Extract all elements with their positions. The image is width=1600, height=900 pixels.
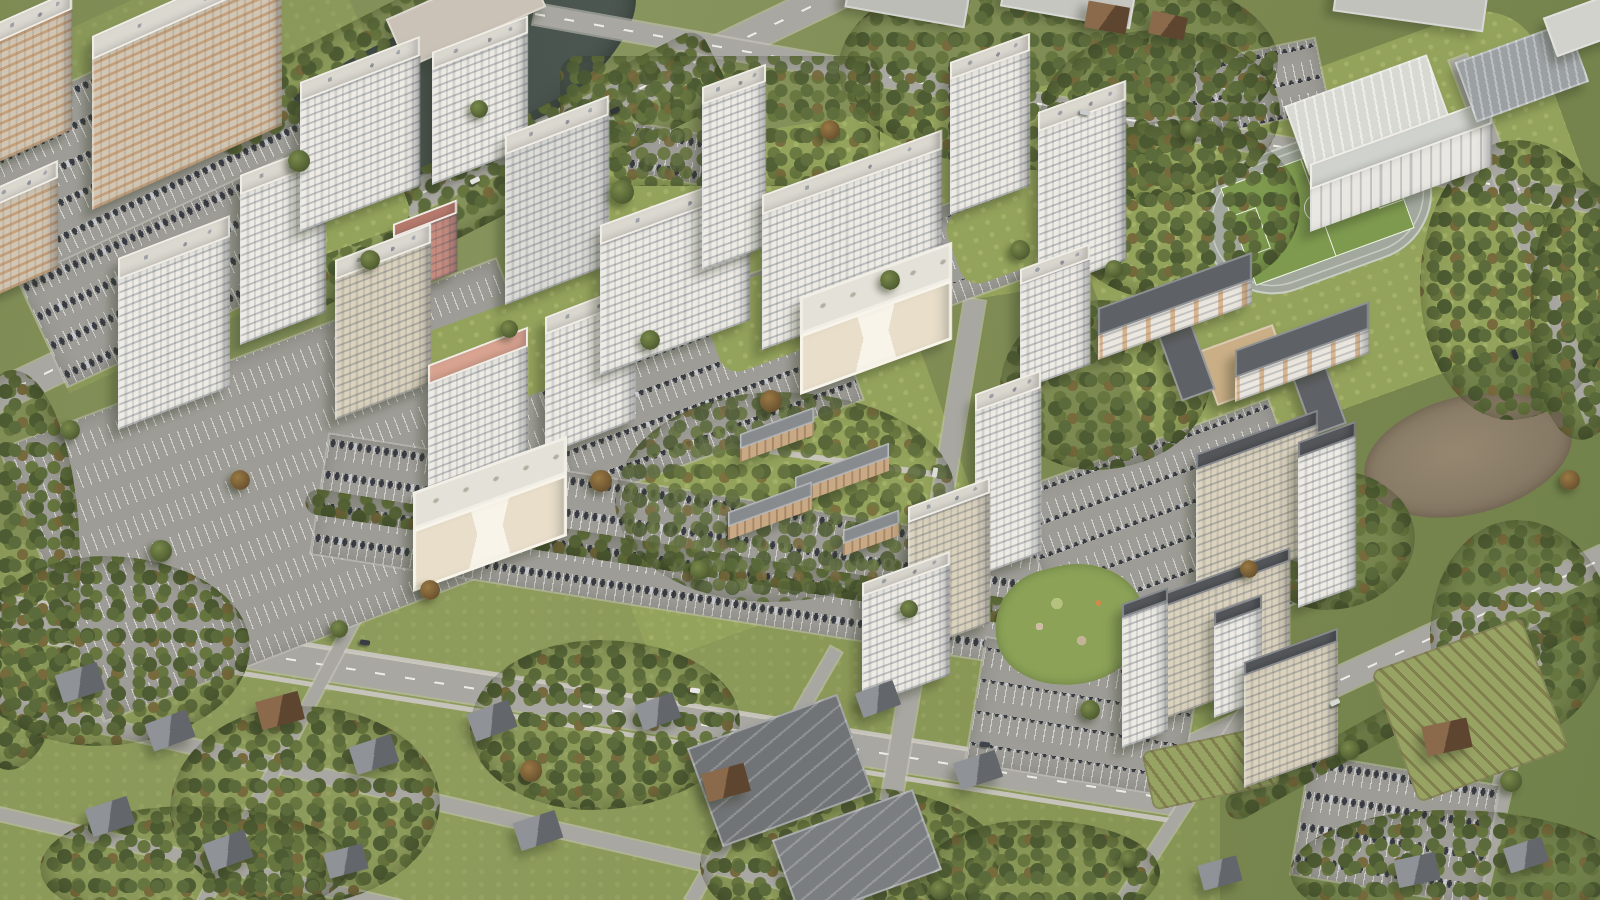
tree-28: [1120, 850, 1138, 868]
block-north-3: [1333, 0, 1490, 32]
tree-11: [1105, 260, 1123, 278]
tower-r2: [1298, 421, 1356, 608]
tree-13: [150, 540, 172, 562]
tree-23: [470, 100, 488, 118]
tree-26: [520, 760, 542, 782]
tower-r4: [1122, 587, 1168, 748]
tree-7: [760, 390, 782, 412]
tree-10: [1010, 240, 1030, 260]
tree-12: [230, 470, 250, 490]
tower-u2: [702, 64, 766, 270]
tree-4: [640, 330, 660, 350]
tree-22: [1560, 470, 1580, 490]
tree-5: [610, 180, 634, 204]
tree-3: [500, 320, 518, 338]
aerial-render: [0, 0, 1600, 900]
tree-24: [820, 120, 840, 140]
tree-6: [880, 270, 900, 290]
tower-u6: [1020, 244, 1090, 390]
tree-16: [420, 580, 440, 600]
tree-25: [1180, 120, 1200, 140]
tree-17: [900, 600, 918, 618]
tree-2: [360, 250, 380, 270]
tree-15: [330, 620, 348, 638]
tree-8: [690, 560, 710, 580]
tower-u4: [950, 33, 1030, 215]
tree-27: [930, 880, 950, 900]
tree-1: [288, 150, 310, 172]
tree-9: [590, 470, 612, 492]
tree-18: [1080, 700, 1100, 720]
tree-14: [60, 420, 80, 440]
tree-21: [1500, 770, 1522, 792]
tree-19: [1240, 560, 1258, 578]
tree-20: [1340, 740, 1360, 760]
